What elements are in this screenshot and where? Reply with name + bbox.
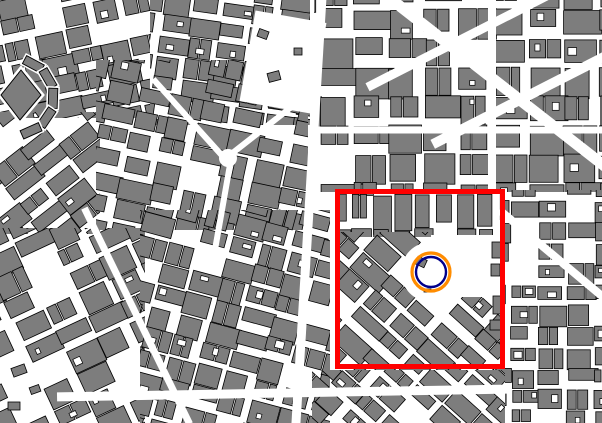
map-viewport[interactable]	[0, 0, 602, 423]
map-canvas[interactable]	[0, 0, 602, 423]
